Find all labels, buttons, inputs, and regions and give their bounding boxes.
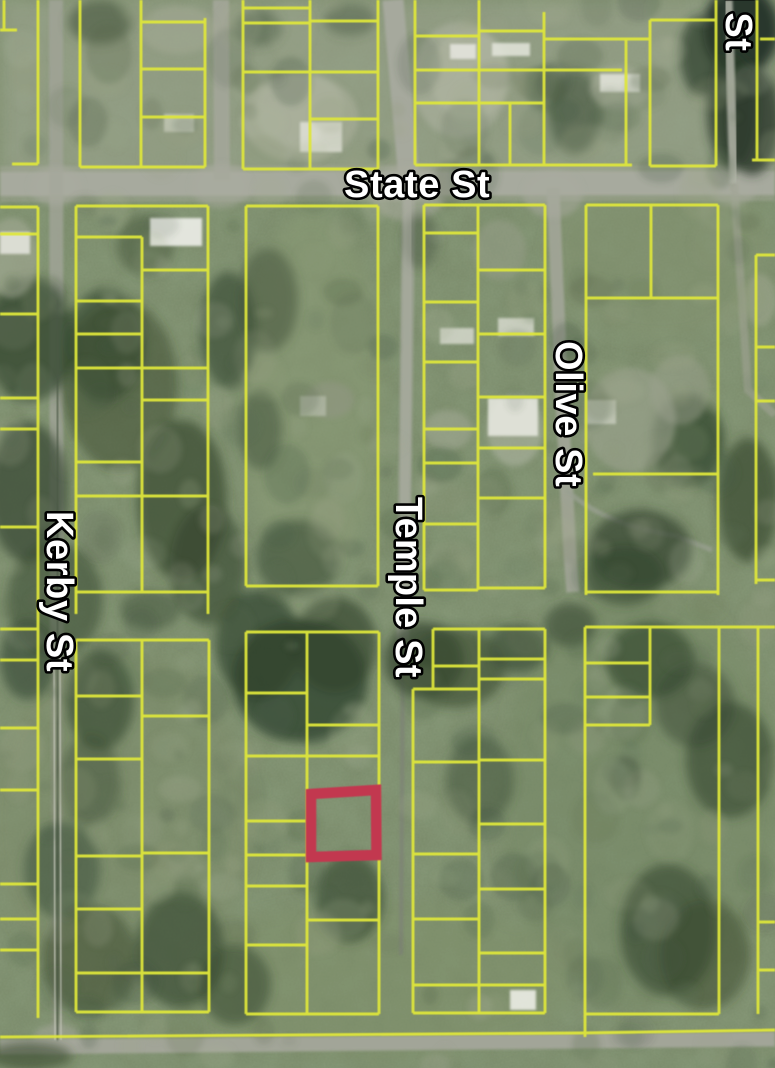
svg-text:Temple St: Temple St — [387, 497, 429, 678]
svg-text:l St: l St — [717, 0, 759, 52]
svg-text:Kerby St: Kerby St — [38, 511, 80, 672]
svg-text:State St: State St — [344, 164, 490, 206]
svg-text:Olive St: Olive St — [547, 341, 589, 487]
